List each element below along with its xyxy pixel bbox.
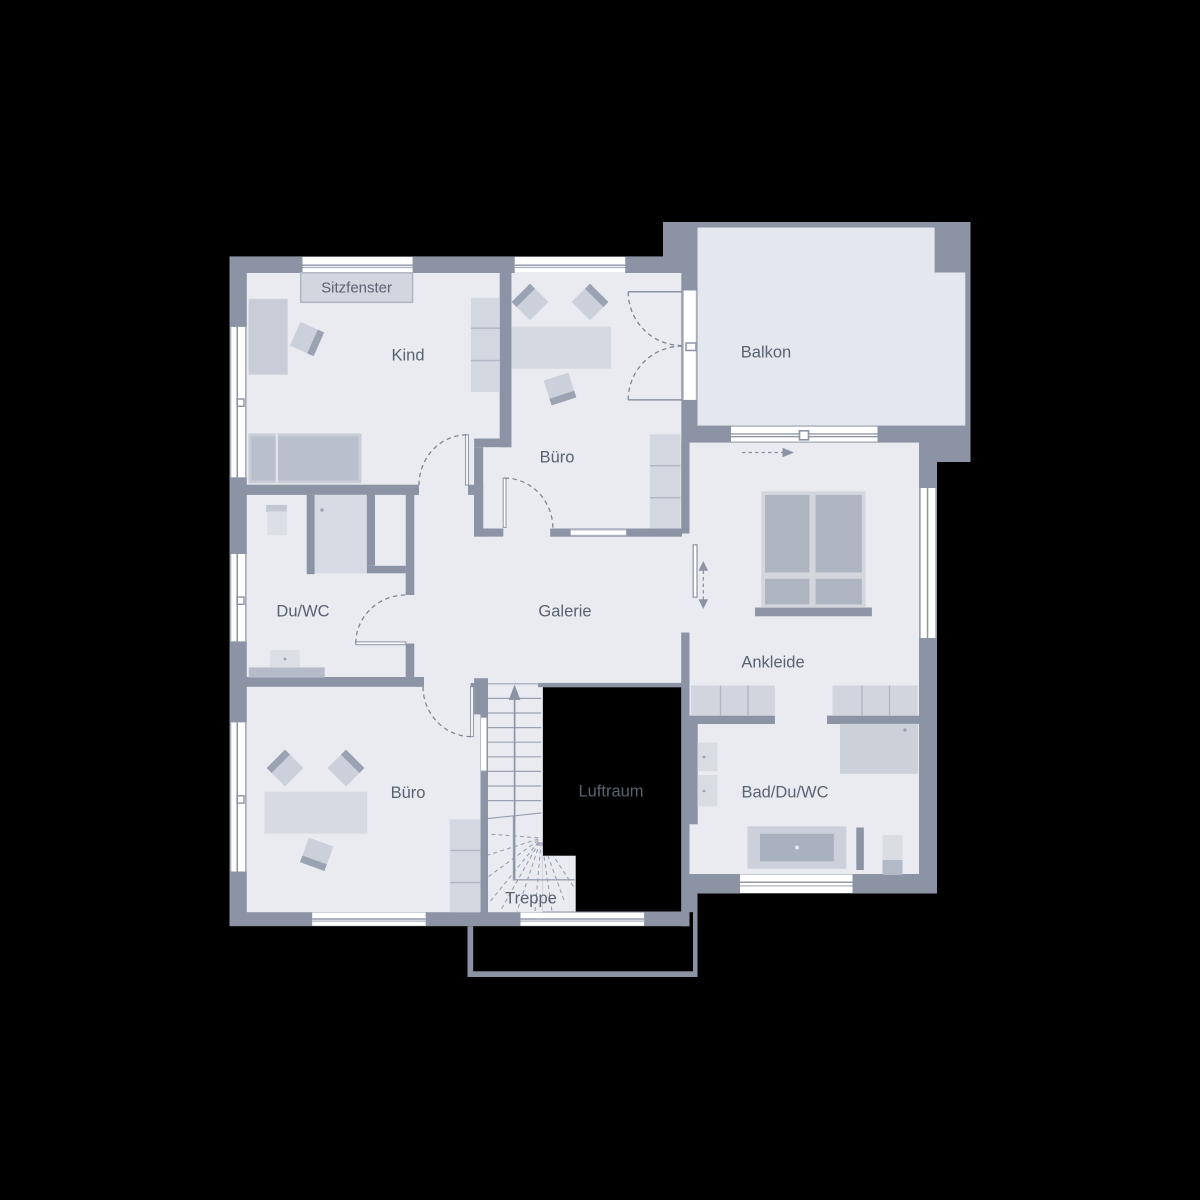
svg-text:Luftraum: Luftraum — [578, 783, 643, 801]
svg-text:Kind: Kind — [391, 347, 424, 365]
svg-text:Bad/Du/WC: Bad/Du/WC — [741, 784, 828, 802]
svg-text:Ankleide: Ankleide — [741, 654, 804, 672]
svg-text:Sitzfenster: Sitzfenster — [321, 280, 392, 297]
svg-text:Büro: Büro — [540, 449, 575, 467]
svg-text:Treppe: Treppe — [505, 890, 557, 908]
svg-text:Galerie: Galerie — [538, 603, 591, 621]
svg-text:Büro: Büro — [391, 784, 426, 802]
svg-text:Balkon: Balkon — [741, 344, 791, 362]
svg-text:Du/WC: Du/WC — [276, 603, 329, 621]
